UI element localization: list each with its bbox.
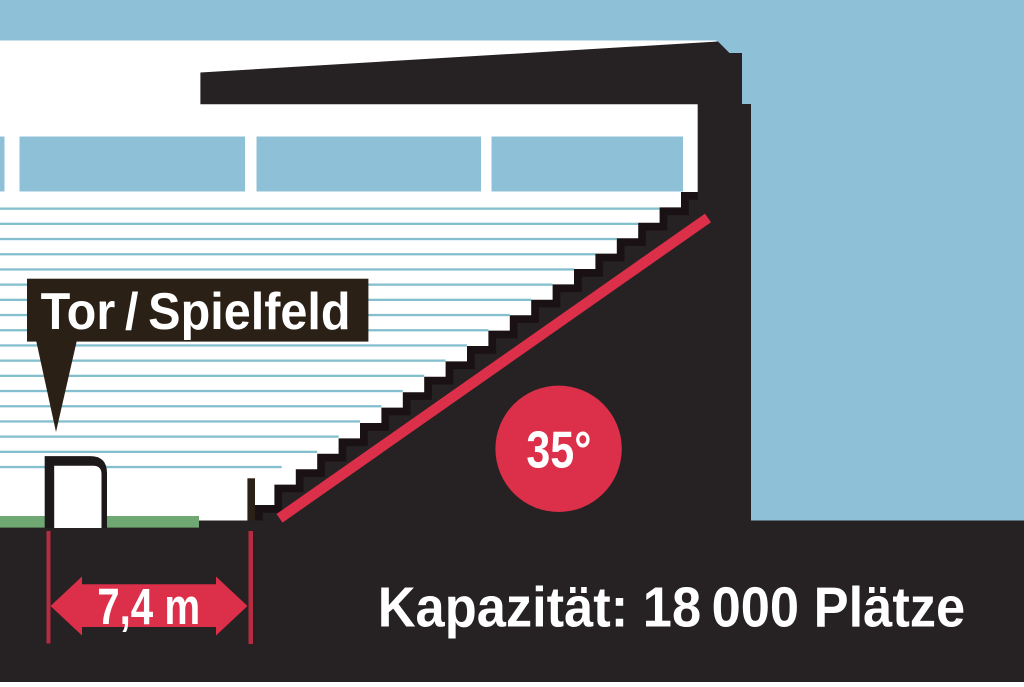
svg-text:7,4 m: 7,4 m <box>97 578 200 635</box>
svg-text:Kapazität: 18 000 Plätze: Kapazität: 18 000 Plätze <box>378 575 966 639</box>
svg-text:35°: 35° <box>526 422 591 480</box>
svg-text:Tor / Spielfeld: Tor / Spielfeld <box>41 282 351 340</box>
